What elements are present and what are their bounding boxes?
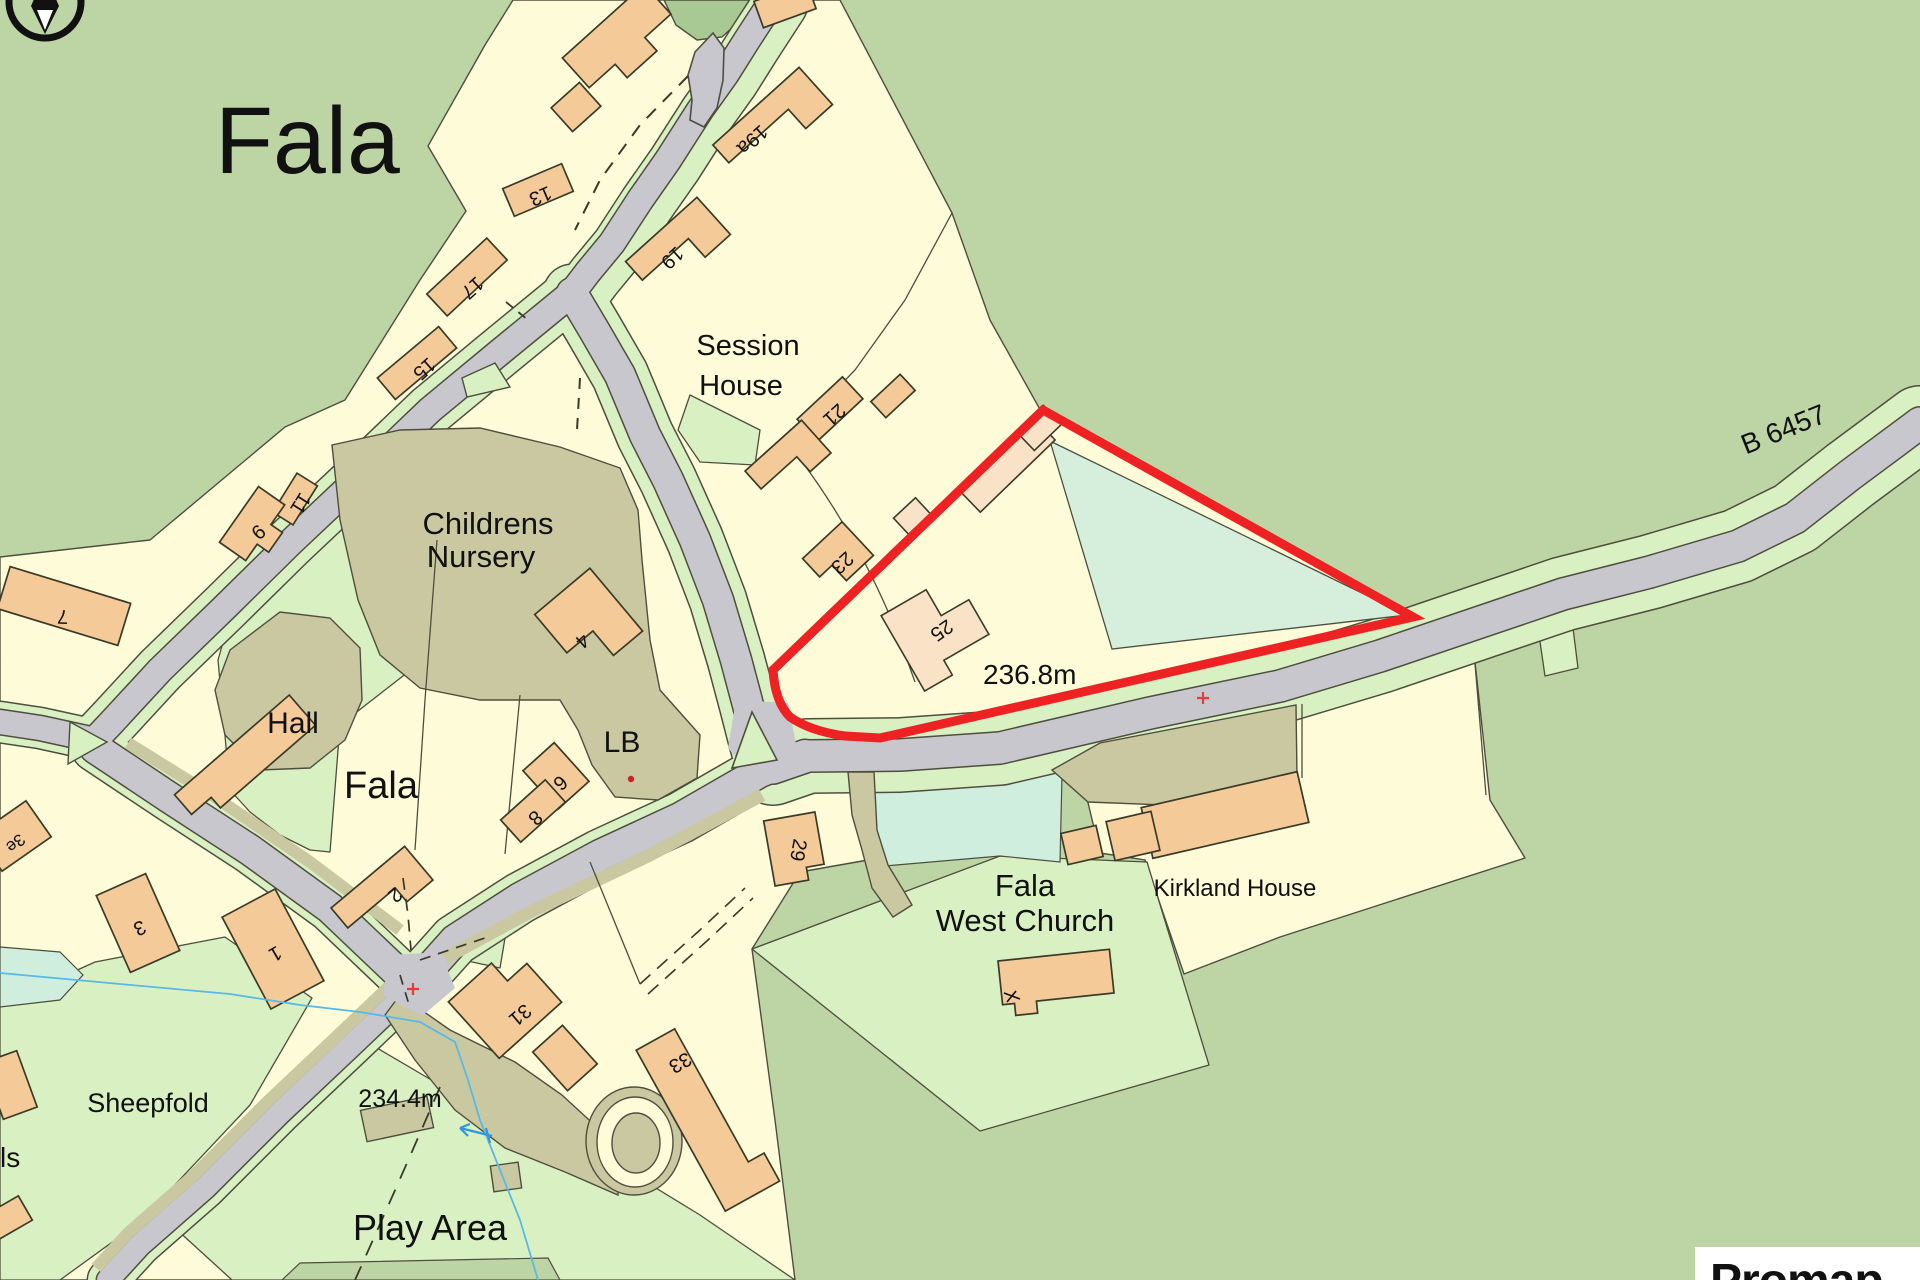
svg-text:Hall: Hall	[267, 707, 319, 740]
svg-text:ls: ls	[0, 1142, 20, 1173]
svg-text:Fala: Fala	[215, 88, 400, 194]
svg-text:234.4m: 234.4m	[358, 1085, 441, 1113]
svg-text:Nursery: Nursery	[427, 539, 536, 574]
svg-text:LB: LB	[604, 726, 641, 759]
svg-text:Fala: Fala	[344, 765, 419, 807]
svg-text:Childrens: Childrens	[423, 506, 554, 541]
svg-text:Kirkland House: Kirkland House	[1154, 875, 1317, 902]
svg-text:7: 7	[57, 605, 69, 627]
svg-text:Play Area: Play Area	[353, 1207, 508, 1248]
svg-text:Session: Session	[696, 330, 799, 362]
svg-text:Fala: Fala	[995, 868, 1056, 903]
svg-text:236.8m: 236.8m	[983, 659, 1076, 690]
svg-text:West Church: West Church	[936, 903, 1115, 938]
svg-text:Promap: Promap	[1710, 1255, 1883, 1280]
svg-text:29: 29	[785, 837, 811, 863]
svg-text:House: House	[699, 370, 783, 402]
svg-text:Sheepfold: Sheepfold	[87, 1088, 209, 1118]
